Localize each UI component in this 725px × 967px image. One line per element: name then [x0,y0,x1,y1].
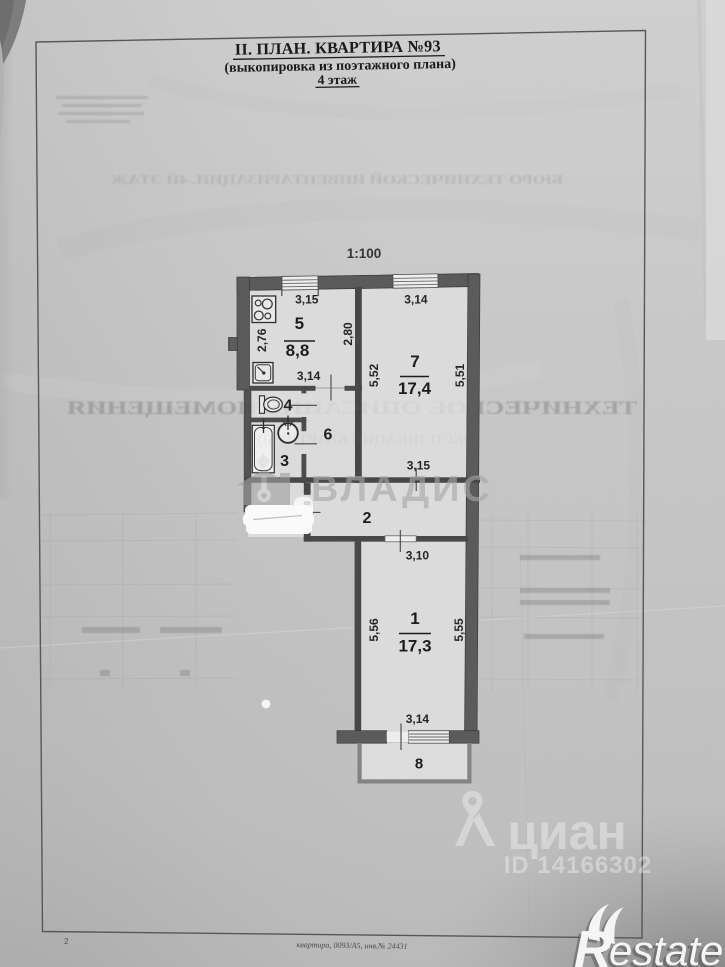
svg-text:квартира, 0093/А5, инв.№ 24431: квартира, 0093/А5, инв.№ 24431 [297,940,408,951]
svg-text:2: 2 [64,937,69,946]
